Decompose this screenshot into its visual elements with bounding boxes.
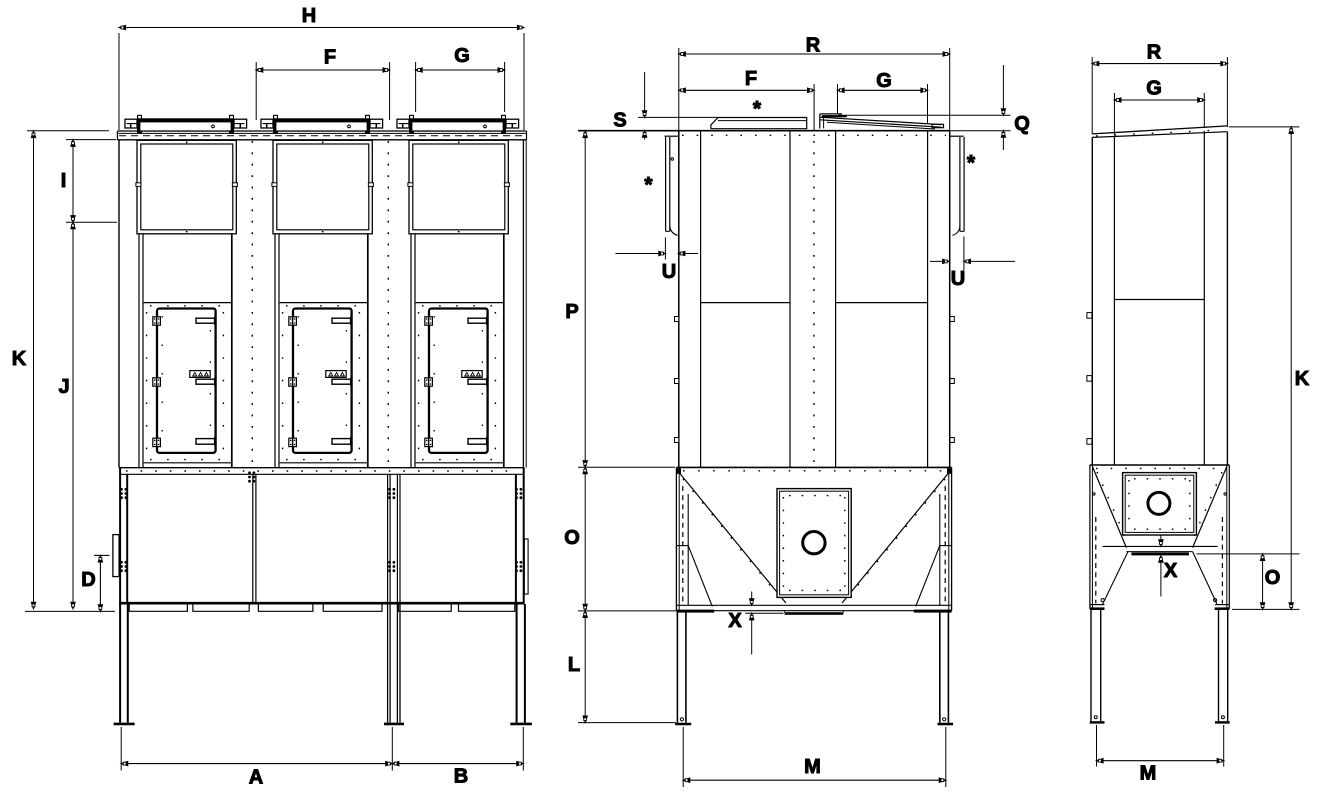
svg-text:M: M (804, 756, 821, 778)
svg-text:S: S (613, 110, 626, 132)
svg-text:G: G (1146, 78, 1162, 100)
svg-text:R: R (806, 35, 821, 57)
svg-text:H: H (302, 5, 316, 27)
svg-text:F: F (324, 47, 336, 69)
svg-text:Q: Q (1014, 113, 1030, 135)
svg-text:O: O (1265, 567, 1281, 589)
svg-text:J: J (58, 376, 69, 398)
svg-text:B: B (454, 766, 468, 788)
svg-text:K: K (12, 348, 27, 370)
svg-text:P: P (565, 301, 578, 323)
svg-text:G: G (454, 45, 470, 67)
svg-text:U: U (662, 261, 676, 283)
svg-text:*: * (967, 152, 976, 175)
svg-text:O: O (564, 527, 580, 549)
svg-text:L: L (568, 654, 580, 676)
svg-text:*: * (753, 98, 762, 121)
svg-text:X: X (728, 610, 742, 632)
svg-text:F: F (745, 68, 757, 90)
svg-text:X: X (1164, 560, 1178, 582)
svg-text:*: * (644, 174, 653, 197)
svg-text:R: R (1147, 42, 1162, 64)
svg-text:A: A (249, 767, 263, 789)
svg-text:D: D (81, 569, 95, 591)
svg-text:I: I (61, 170, 67, 192)
svg-text:G: G (876, 70, 892, 92)
svg-text:M: M (1140, 763, 1157, 785)
svg-text:U: U (951, 268, 965, 290)
svg-text:K: K (1295, 368, 1310, 390)
